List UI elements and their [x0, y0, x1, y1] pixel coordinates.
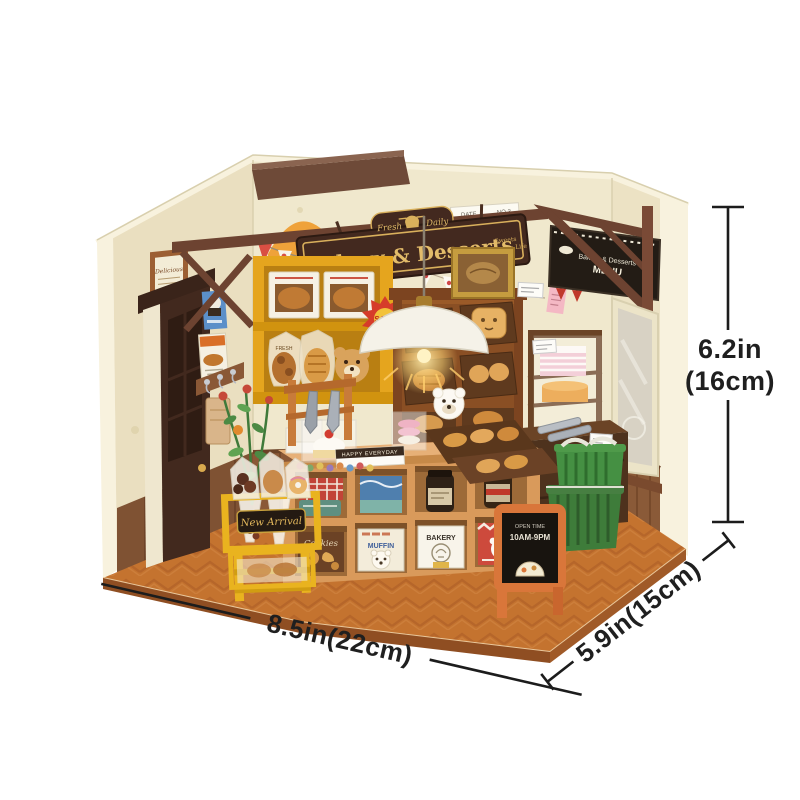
framed-bread-picture: [452, 248, 514, 298]
glass-display-case: [528, 330, 602, 428]
bakery-dollhouse-photo: Delicious: [0, 0, 800, 800]
macaron-case: [392, 412, 426, 450]
open-sign-line1: OPEN TIME: [515, 524, 545, 530]
jam-jar-1: [426, 470, 454, 512]
boxed-bread-left: [269, 272, 319, 318]
dimension-height-in: 6.2in: [698, 334, 762, 364]
new-arrival-label: New Arrival: [240, 516, 303, 529]
blue-box-stack: [360, 476, 402, 513]
dimension-height: 6.2in (16cm): [685, 207, 775, 522]
bread-bag-label: FRESH: [276, 346, 293, 352]
price-tag: [518, 282, 544, 297]
open-sign-line2: 10AM-9PM: [510, 533, 551, 542]
bakery-box-label: BAKERY: [426, 535, 456, 542]
product-screenshot: Delicious: [0, 0, 800, 800]
bakery-box: BAKERY: [418, 526, 464, 568]
bread-bags: FRESH: [269, 330, 335, 388]
dimension-height-cm: (16cm): [685, 366, 775, 396]
bear-head-sign: [433, 388, 465, 419]
new-arrival-cart: New Arrival: [223, 450, 320, 601]
muffin-box-label: MUFFIN: [368, 543, 394, 550]
muffin-box: MUFFIN: [358, 529, 404, 571]
